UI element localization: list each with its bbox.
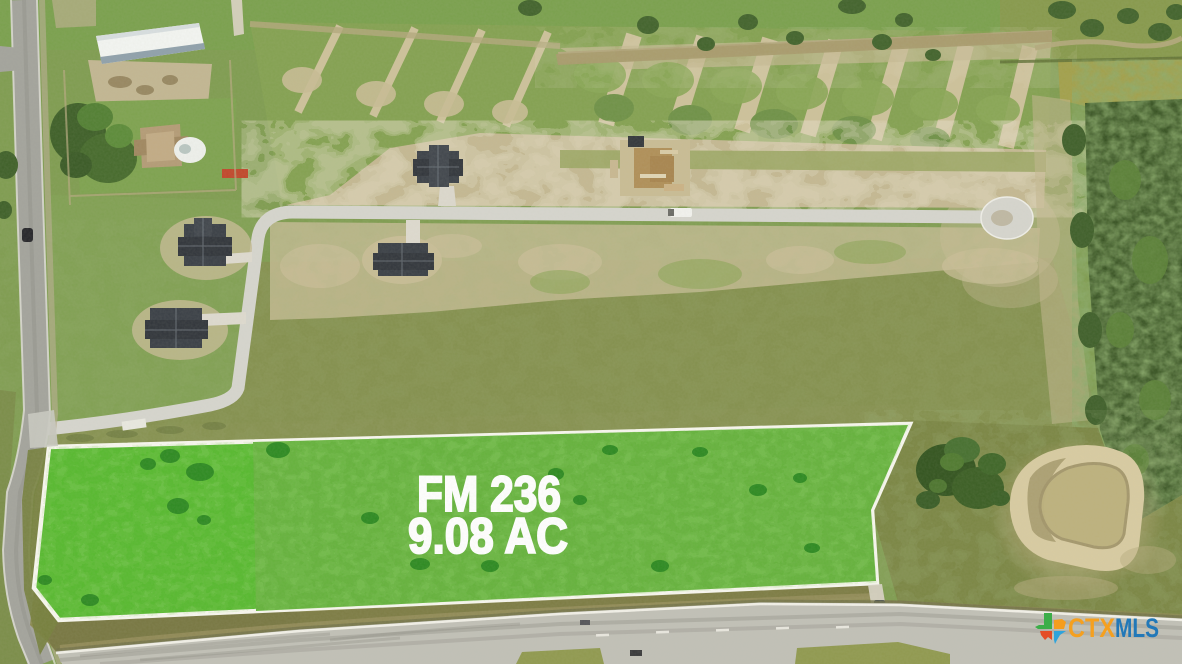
svg-text:MLS: MLS	[1115, 613, 1159, 643]
svg-text:CTX: CTX	[1068, 613, 1115, 643]
